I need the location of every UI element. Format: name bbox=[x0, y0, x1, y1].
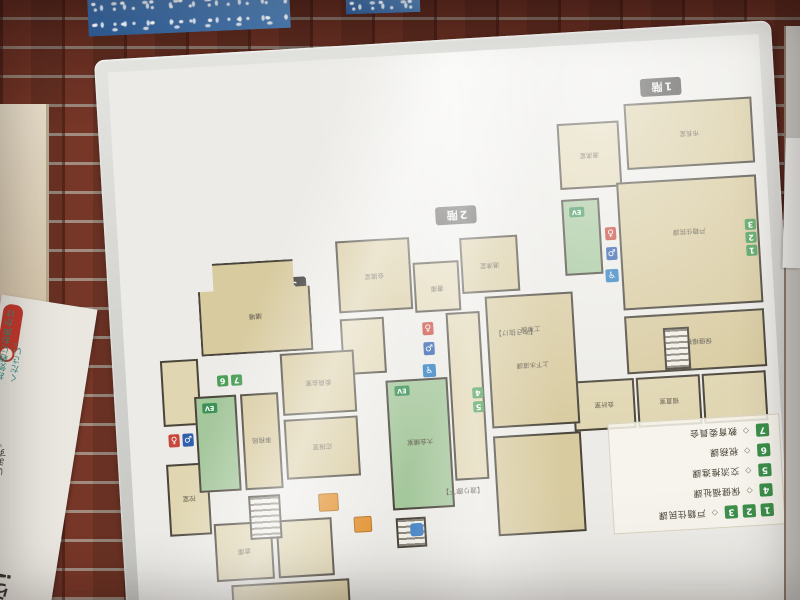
room: 委員会室 bbox=[280, 350, 358, 416]
room: 湯沸室 bbox=[459, 235, 520, 294]
floor-plan-3f: 3階 議場 委員会室 応接室 控室 EV 事務局 倉庫 bbox=[152, 253, 373, 600]
board-face: 1階 湯沸室 市長室 戸籍住民課 保健福祉課 会計室 宿直室 EV ♀ bbox=[108, 34, 796, 600]
legend-row: 1 2 3 ◇ 戸籍住民課 bbox=[624, 503, 775, 525]
room: 書庫 bbox=[413, 260, 462, 313]
legend-row: 7 ◇ 教育委員会 bbox=[619, 423, 770, 445]
room: 市長室 bbox=[623, 97, 755, 170]
accessible-toilet-icon: ♿ bbox=[605, 269, 619, 283]
floor-badge-1f: 1階 bbox=[640, 77, 682, 97]
plan-note: 【渡り廊下】 bbox=[442, 484, 485, 496]
legend-number: 6 bbox=[757, 443, 771, 457]
toilet-female-icon: ♀ bbox=[422, 322, 434, 336]
diamond-icon: ◇ bbox=[746, 486, 753, 495]
room: 戸籍住民課 bbox=[616, 174, 763, 310]
council-chamber: 議場 bbox=[196, 258, 313, 356]
room: 事務局 bbox=[240, 392, 284, 490]
room: 工事課 上下水道課 bbox=[485, 291, 581, 428]
dept-tag: 1 bbox=[746, 244, 758, 256]
floor-guide-board: 1階 湯沸室 市長室 戸籍住民課 保健福祉課 会計室 宿直室 EV ♀ bbox=[94, 20, 800, 600]
floor-plan-1f: 1階 湯沸室 市長室 戸籍住民課 保健福祉課 会計室 宿直室 EV ♀ bbox=[552, 70, 778, 442]
orange-marker bbox=[318, 493, 339, 512]
toilet-male-icon: ♂ bbox=[423, 342, 435, 356]
dept-tag: 7 bbox=[231, 374, 243, 386]
legend-row: 6 ◇ 税務課 bbox=[620, 443, 771, 465]
elevator-tag: EV bbox=[394, 385, 410, 396]
diamond-icon: ◇ bbox=[711, 508, 718, 517]
toilet-male-icon: ♂ bbox=[606, 247, 618, 261]
legend-number: 4 bbox=[759, 483, 773, 497]
accessible-toilet-icon: ♿ bbox=[423, 364, 437, 378]
wall-edge-strip bbox=[784, 26, 800, 600]
elevator-tag: EV bbox=[201, 403, 217, 414]
sign-main-text: ご相談はこちら! bbox=[0, 511, 58, 600]
room: 保健福祉課 bbox=[624, 308, 767, 374]
room bbox=[276, 517, 335, 578]
hall-room bbox=[194, 395, 242, 493]
sign-sub-text-1: 筆談器を用意しています。 bbox=[0, 397, 75, 486]
floor-badge-2f: 2階 bbox=[435, 205, 477, 225]
department-legend: 7 ◇ 教育委員会 6 ◇ 税務課 5 ◇ 交流推進課 4 ◇ 保健福祉課 1 bbox=[607, 413, 785, 534]
stairs bbox=[663, 327, 691, 370]
legend-row: 4 ◇ 保健福祉課 bbox=[622, 483, 773, 505]
diamond-icon: ◇ bbox=[743, 426, 750, 435]
dept-tag: 5 bbox=[473, 401, 485, 413]
toilet-female-icon: ♀ bbox=[168, 434, 180, 448]
diamond-icon: ◇ bbox=[744, 446, 751, 455]
dept-tag: 4 bbox=[472, 387, 484, 399]
dept-tag: 3 bbox=[744, 218, 756, 230]
toilet-male-icon: ♂ bbox=[182, 433, 194, 447]
toilet-female-icon: ♀ bbox=[605, 227, 617, 241]
room bbox=[231, 578, 350, 600]
paper-on-wall bbox=[782, 138, 800, 268]
copier-icon bbox=[410, 523, 424, 537]
stairs bbox=[248, 494, 283, 540]
legend-number: 7 bbox=[756, 423, 770, 437]
legend-number: 5 bbox=[758, 463, 772, 477]
room bbox=[493, 431, 587, 536]
legend-number: 1 bbox=[760, 503, 774, 517]
board-title: N 風連庁舎ご案内 bbox=[385, 541, 741, 600]
legend-number: 3 bbox=[724, 505, 738, 519]
cream-panel bbox=[0, 104, 49, 306]
dept-tag: 2 bbox=[745, 231, 757, 243]
dept-tag: 6 bbox=[217, 375, 229, 387]
room: 応接室 bbox=[284, 415, 361, 479]
photo-of-floor-guide-board: 1階 湯沸室 市長室 戸籍住民課 保健福祉課 会計室 宿直室 EV ♀ bbox=[0, 0, 800, 600]
legend-number: 2 bbox=[742, 504, 756, 518]
legend-row: 5 ◇ 交流推進課 bbox=[621, 463, 772, 485]
diamond-icon: ◇ bbox=[745, 466, 752, 475]
sign-sub-text-2: お気軽にお声かけください。 bbox=[0, 301, 91, 392]
